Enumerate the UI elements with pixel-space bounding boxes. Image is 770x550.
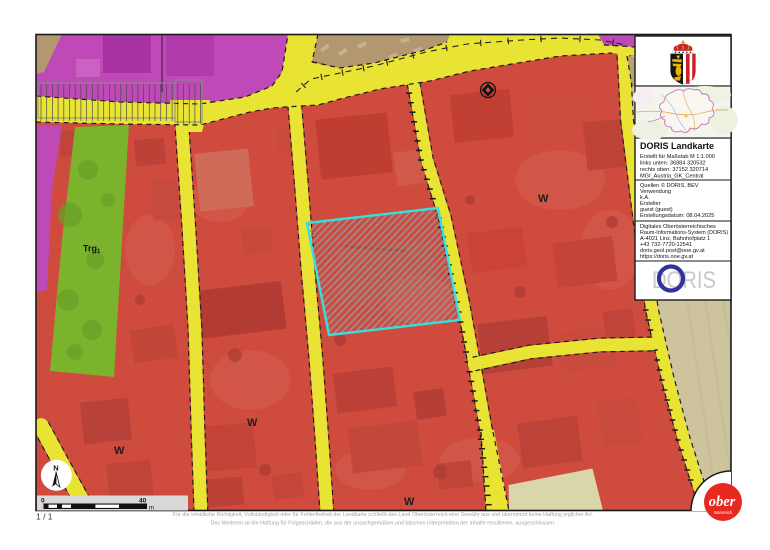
svg-text:Erstellungsdatum: 08.04.2025: Erstellungsdatum: 08.04.2025 (640, 213, 714, 219)
svg-text:MGI_Austria_GK_Central: MGI_Austria_GK_Central (640, 174, 703, 180)
svg-text:rechts oben: 37152 320714: rechts oben: 37152 320714 (640, 167, 708, 173)
svg-text:W: W (114, 445, 125, 457)
svg-text:Erstellt für Maßstab M 1:1.000: Erstellt für Maßstab M 1:1.000 (640, 154, 715, 160)
svg-text:40: 40 (139, 498, 147, 505)
svg-text:Quellen © DORIS, BEV: Quellen © DORIS, BEV (640, 182, 699, 189)
svg-text:W: W (247, 417, 258, 429)
svg-text:m: m (149, 506, 154, 512)
svg-text:ober: ober (709, 494, 736, 510)
svg-text:https://doris.ooe.gv.at: https://doris.ooe.gv.at (640, 254, 694, 260)
svg-text:Für die inhaltliche Richtigkei: Für die inhaltliche Richtigkeit, Vollstä… (173, 512, 593, 518)
svg-text:DORIS Landkarte: DORIS Landkarte (640, 141, 714, 151)
svg-text:Des Weiteren ist die Haftung f: Des Weiteren ist die Haftung für Folgesc… (210, 521, 555, 527)
svg-text:N: N (53, 464, 58, 473)
svg-text:W: W (538, 193, 549, 205)
svg-text:österreich: österreich (714, 510, 733, 515)
svg-text:W: W (404, 496, 415, 508)
svg-text:1 / 1: 1 / 1 (36, 512, 53, 522)
svg-text:links unten: 36884 320532: links unten: 36884 320532 (640, 161, 706, 167)
svg-text:0: 0 (41, 498, 45, 505)
